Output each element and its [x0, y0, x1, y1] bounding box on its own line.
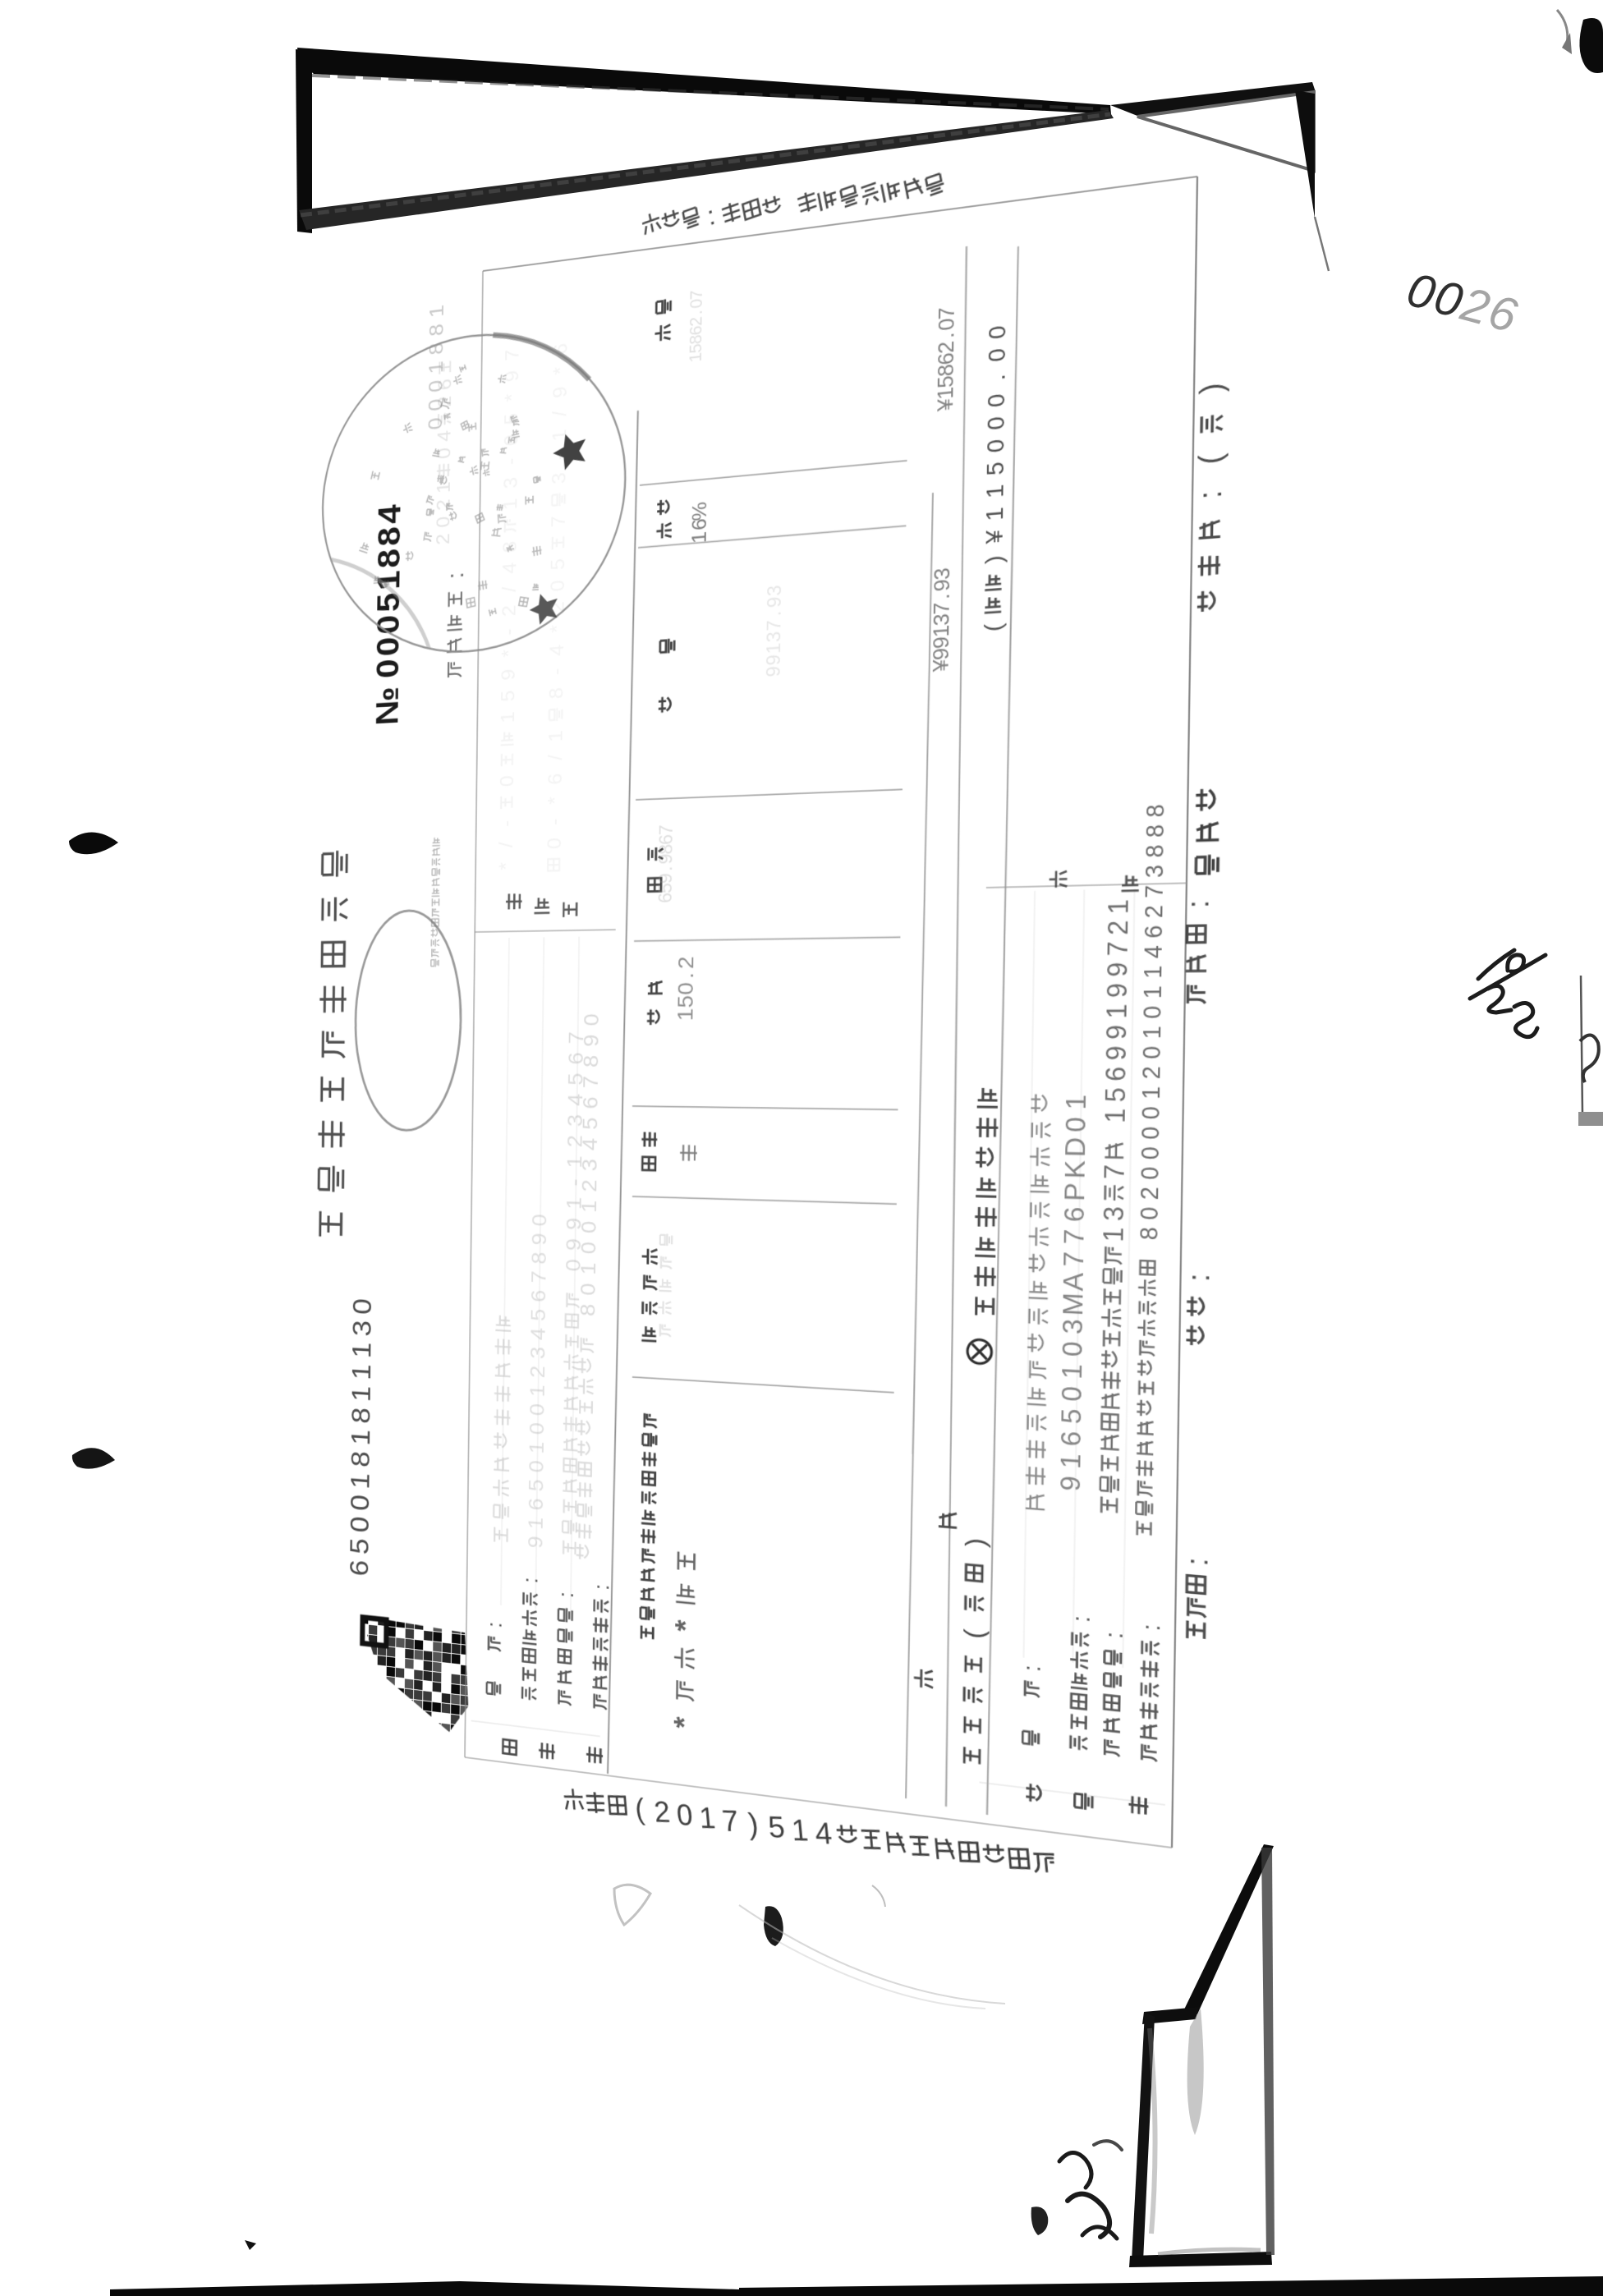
- svg-text:0026: 0026: [1402, 263, 1524, 343]
